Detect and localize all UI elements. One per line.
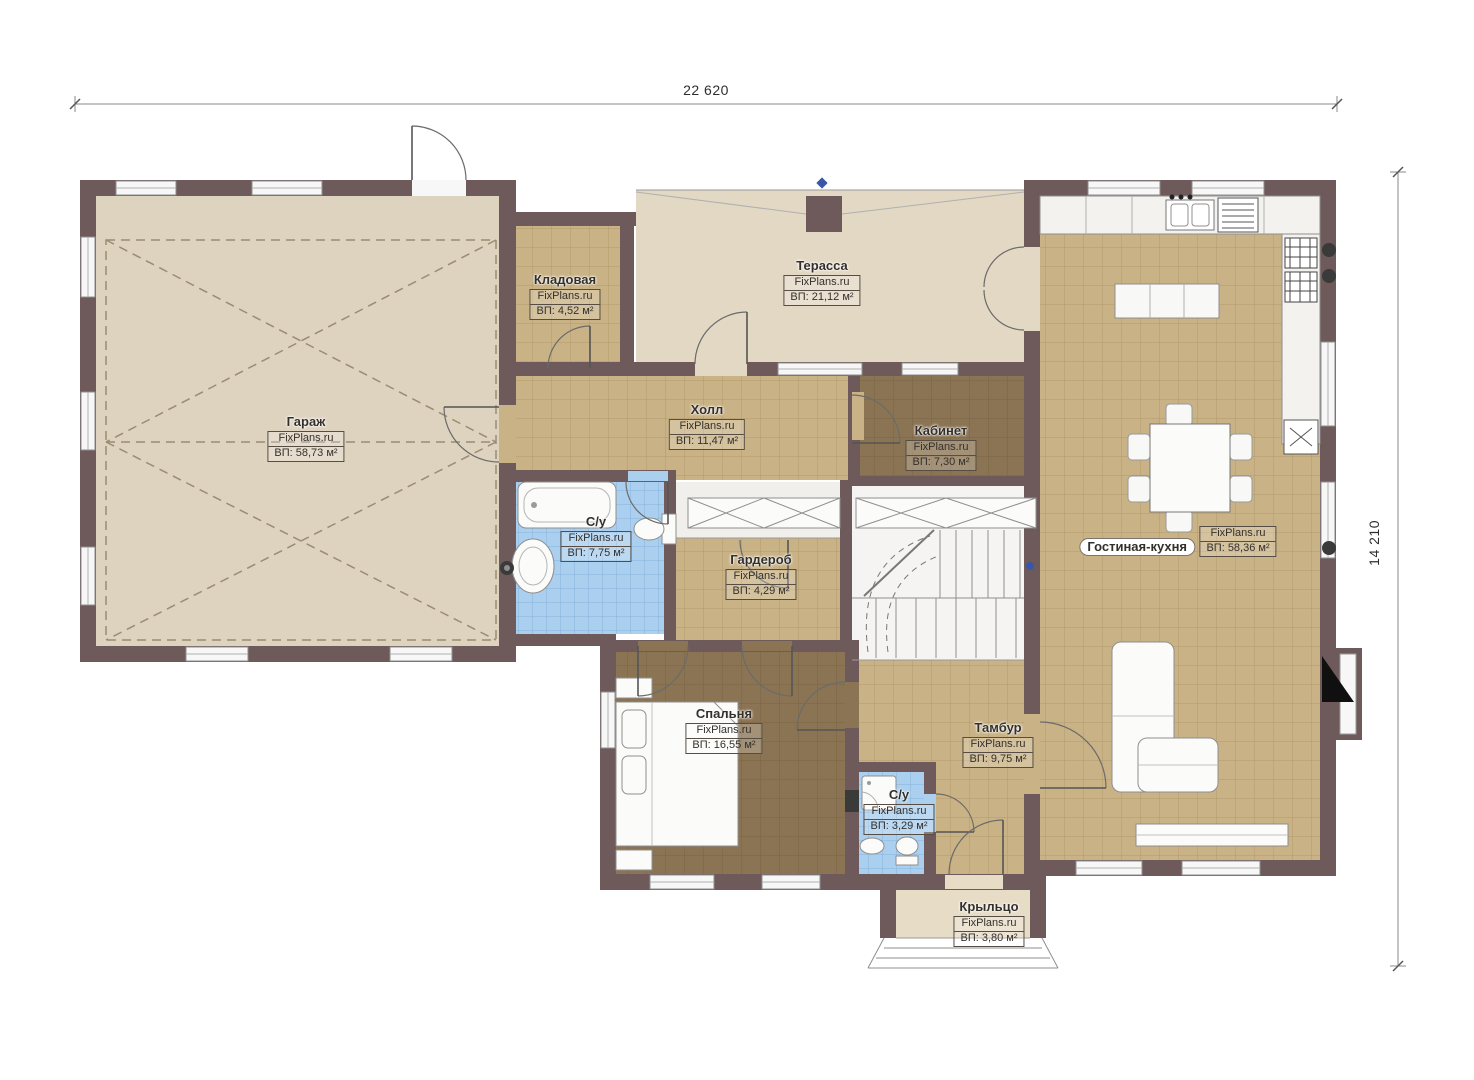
room-name: Гардероб: [725, 552, 796, 568]
room-name: Кабинет: [905, 423, 976, 439]
wall-fixture: [1322, 269, 1336, 283]
room-name: Гостиная-кухня: [1079, 538, 1195, 556]
room-label-wardrobe: Гардероб FixPlans.ru ВП: 4,29 м²: [725, 552, 796, 600]
washer: [845, 790, 859, 812]
room-area: ВП: 58,36 м²: [1200, 542, 1275, 556]
brand-watermark: FixPlans.ru: [726, 570, 795, 585]
stove: [1218, 198, 1258, 232]
room-area: ВП: 3,29 м²: [864, 820, 933, 834]
room-name: Крыльцо: [953, 899, 1024, 915]
wall-fixture: [1322, 243, 1336, 257]
burner-grate: [1285, 272, 1317, 302]
room-label-porch: Крыльцо FixPlans.ru ВП: 3,80 м²: [953, 899, 1024, 947]
room-info-box: FixPlans.ru ВП: 16,55 м²: [685, 723, 762, 754]
room-info-box: FixPlans.ru ВП: 58,73 м²: [267, 431, 344, 462]
room-area: ВП: 7,75 м²: [561, 547, 630, 561]
dimension-height-label: 14 210: [1366, 520, 1382, 566]
room-info-box: FixPlans.ru ВП: 7,30 м²: [905, 440, 976, 471]
room-area: ВП: 7,30 м²: [906, 456, 975, 470]
sink-small: [860, 838, 884, 854]
dining-table: [1150, 424, 1230, 512]
brand-watermark: FixPlans.ru: [906, 441, 975, 456]
room-label-hall: Холл FixPlans.ru ВП: 11,47 м²: [669, 402, 745, 450]
room-area: ВП: 4,52 м²: [530, 305, 599, 319]
closet-stairs: [856, 498, 1036, 528]
room-label-bedroom: Спальня FixPlans.ru ВП: 16,55 м²: [685, 706, 762, 754]
brand-watermark: FixPlans.ru: [530, 290, 599, 305]
pillow: [622, 756, 646, 794]
kitchen-side-counter: [1282, 234, 1320, 454]
pillow: [622, 710, 646, 748]
wall-vent-inner: [504, 565, 510, 571]
room-name: Терасса: [783, 258, 860, 274]
room-label-terrace: Терасса FixPlans.ru ВП: 21,12 м²: [783, 258, 860, 306]
room-name: Гараж: [267, 414, 344, 430]
brand-watermark: FixPlans.ru: [670, 420, 744, 435]
brand-watermark: FixPlans.ru: [784, 276, 859, 291]
room-area: ВП: 11,47 м²: [670, 435, 744, 449]
room-label-office: Кабинет FixPlans.ru ВП: 7,30 м²: [905, 423, 976, 471]
room-label-living-kitchen: Гостиная-кухня FixPlans.ru ВП: 58,36 м²: [1079, 526, 1276, 557]
room-name: С/у: [560, 514, 631, 530]
room-info-box: FixPlans.ru ВП: 3,29 м²: [863, 804, 934, 835]
room-name: Холл: [669, 402, 745, 418]
room-name: С/у: [863, 787, 934, 803]
kitchen-counter: [1040, 195, 1320, 235]
terrace-marker-dot: [816, 177, 827, 188]
room-label-vestibule: Тамбур FixPlans.ru ВП: 9,75 м²: [962, 720, 1033, 768]
toilet-small: [896, 837, 918, 865]
brand-watermark: FixPlans.ru: [1200, 527, 1275, 542]
brand-watermark: FixPlans.ru: [864, 805, 933, 820]
room-area: ВП: 9,75 м²: [963, 753, 1032, 767]
brand-watermark: FixPlans.ru: [686, 724, 761, 739]
nightstand: [616, 850, 652, 870]
tv-stand: [1136, 824, 1288, 846]
room-info-box: FixPlans.ru ВП: 9,75 м²: [962, 737, 1033, 768]
room-label-garage: Гараж FixPlans.ru ВП: 58,73 м²: [267, 414, 344, 462]
room-info-box: FixPlans.ru ВП: 4,29 м²: [725, 569, 796, 600]
room-info-box: FixPlans.ru ВП: 58,36 м²: [1199, 526, 1276, 557]
kitchen-sink: [1166, 195, 1214, 231]
room-info-box: FixPlans.ru ВП: 4,52 м²: [529, 289, 600, 320]
brand-watermark: FixPlans.ru: [561, 532, 630, 547]
room-info-box: FixPlans.ru ВП: 3,80 м²: [953, 916, 1024, 947]
room-name: Спальня: [685, 706, 762, 722]
terrace-column: [806, 196, 842, 232]
burner-grate: [1285, 238, 1317, 268]
room-area: ВП: 3,80 м²: [954, 932, 1023, 946]
wall-fixture: [1322, 541, 1336, 555]
room-area: ВП: 21,12 м²: [784, 291, 859, 305]
room-info-box: FixPlans.ru ВП: 11,47 м²: [669, 419, 745, 450]
kitchen-island: [1115, 284, 1219, 318]
room-label-bathroom-main: С/у FixPlans.ru ВП: 7,75 м²: [560, 514, 631, 562]
room-info-box: FixPlans.ru ВП: 21,12 м²: [783, 275, 860, 306]
room-name: Тамбур: [962, 720, 1033, 736]
room-name: Кладовая: [529, 272, 600, 288]
dimension-width-label: 22 620: [75, 82, 1337, 98]
room-label-storage: Кладовая FixPlans.ru ВП: 4,52 м²: [529, 272, 600, 320]
bathroom-sink: [512, 539, 554, 593]
brand-watermark: FixPlans.ru: [268, 432, 343, 447]
room-label-bathroom-small: С/у FixPlans.ru ВП: 3,29 м²: [863, 787, 934, 835]
closet-hall: [688, 498, 840, 528]
appliance-cross: [1284, 420, 1318, 454]
room-area: ВП: 58,73 м²: [268, 447, 343, 461]
brand-watermark: FixPlans.ru: [954, 917, 1023, 932]
stairs-marker-dot: [1026, 562, 1034, 570]
room-area: ВП: 4,29 м²: [726, 585, 795, 599]
room-info-box: FixPlans.ru ВП: 7,75 м²: [560, 531, 631, 562]
room-area: ВП: 16,55 м²: [686, 739, 761, 753]
door-garage-exterior: [412, 126, 466, 180]
brand-watermark: FixPlans.ru: [963, 738, 1032, 753]
